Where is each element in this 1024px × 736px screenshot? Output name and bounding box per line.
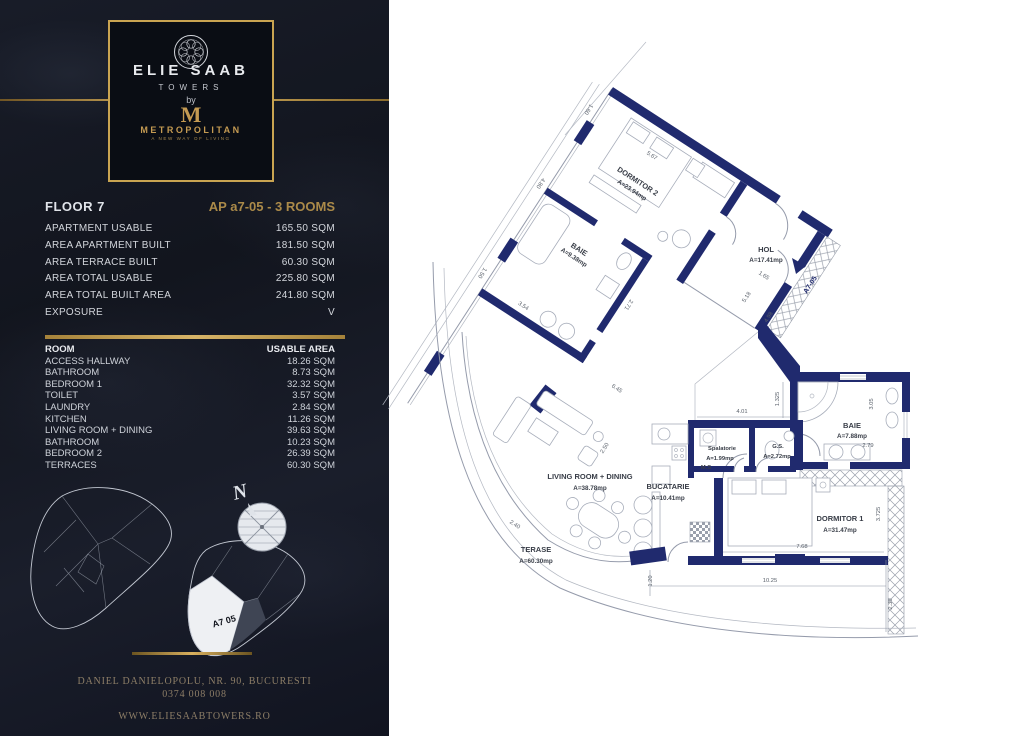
room-label-bucatarie: BUCATARIE — [646, 482, 689, 491]
dim-label: 6.45 — [610, 384, 623, 395]
terrace-hatch-strip — [767, 237, 840, 338]
room-area-living: A=38.78mp — [573, 485, 607, 492]
dim-label: 5.18 — [742, 291, 753, 304]
room-area-hol: A=17.41mp — [749, 257, 783, 264]
floor-plan: DORMITOR 2 A=23.94mp BAIE A=9.38mp 5.67 … — [0, 0, 1024, 736]
room-area-dormitor1: A=31.47mp — [823, 527, 857, 534]
room-label-baie1: BAIE — [843, 421, 861, 430]
room-area-baie1: A=7.88mp — [837, 433, 867, 440]
bathroom-furniture — [488, 200, 636, 348]
dim-label: 4.80 — [534, 176, 545, 189]
room-area-spalatorie: A=1.99mp — [706, 456, 734, 462]
bottom-dimensions: 10.25 2.30 1.20 — [648, 560, 894, 632]
dim-label: 7.68 — [796, 544, 807, 550]
dim-label: 3.725 — [876, 507, 882, 522]
kitchen-furniture — [634, 424, 710, 560]
terrace-hatch-strip — [888, 486, 904, 634]
page: ELIE SAAB TOWERS by M METROPOLITAN A NEW… — [0, 0, 1024, 736]
dim-label: 2.71 — [623, 298, 634, 311]
dim-label: 3.54 — [517, 301, 530, 313]
dim-label: 4.01 — [736, 409, 747, 415]
dim-label: 1.20 — [648, 575, 654, 586]
room-label-living: LIVING ROOM + DINING — [547, 472, 632, 481]
bedroom1-furniture — [728, 478, 830, 546]
annotation-ms: M.S — [701, 465, 711, 471]
dim-label: 3.05 — [869, 398, 875, 409]
dim-label: 1.65 — [757, 271, 770, 282]
room-area-bucatarie: A=10.41mp — [651, 495, 685, 502]
hallway-edge — [695, 332, 758, 420]
room-area-gs: A=2.72mp — [763, 454, 791, 460]
dim-label: 10.25 — [763, 578, 778, 584]
room-label-terase: TERASE — [521, 545, 551, 554]
dim-label: 1.325 — [775, 392, 781, 407]
room-label-hol: HOL — [758, 245, 774, 254]
room-area-terase: A=60.30mp — [519, 558, 553, 565]
room-label-spalatorie: Spalatorie — [708, 446, 737, 452]
dim-label: 2.79 — [862, 443, 873, 449]
terrace-hatch-strip — [800, 470, 902, 486]
dim-label: 2.50 — [600, 442, 611, 455]
dim-label: 2.30 — [888, 598, 894, 609]
room-label-dormitor1: DORMITOR 1 — [817, 514, 864, 523]
room-label-gs: G.S. — [772, 444, 784, 450]
dim-label: 2.40 — [508, 520, 521, 531]
dim-label: 1.50 — [476, 266, 487, 279]
